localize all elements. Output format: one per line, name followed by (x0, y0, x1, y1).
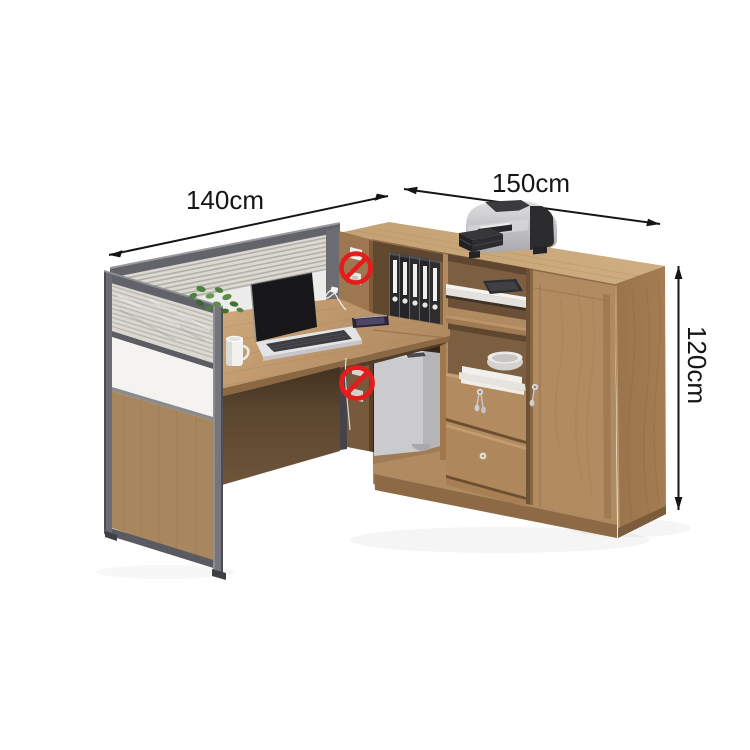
svg-text:140cm: 140cm (186, 185, 264, 215)
svg-text:120cm: 120cm (682, 326, 712, 404)
svg-text:150cm: 150cm (492, 168, 570, 198)
